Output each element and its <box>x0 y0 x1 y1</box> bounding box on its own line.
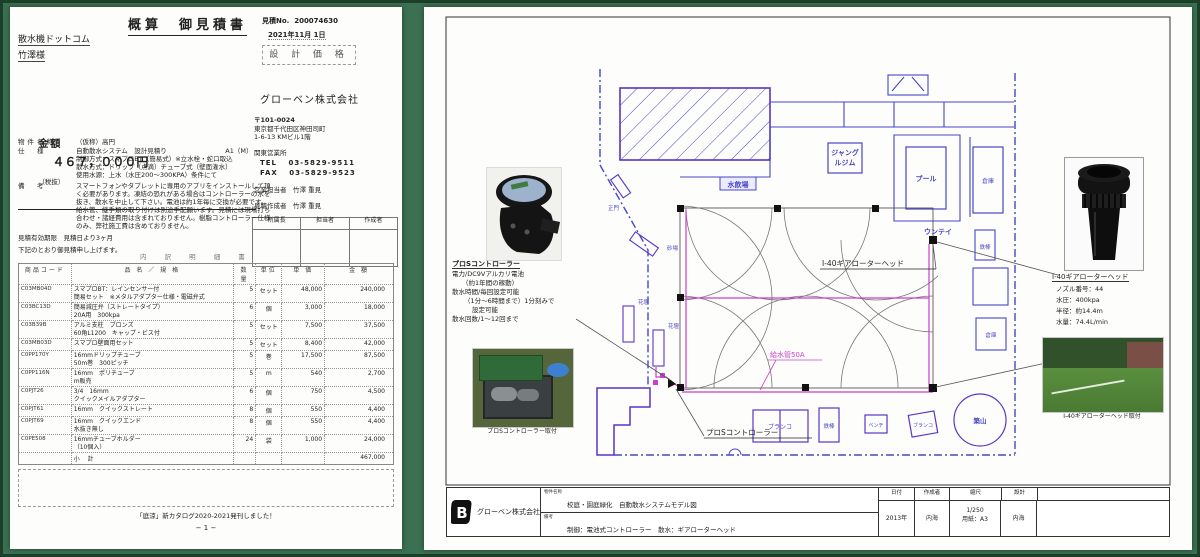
storage-label: 倉庫 <box>982 177 994 185</box>
item-qty: 5 <box>233 321 255 339</box>
design-price-stamp: 設 計 価 格 <box>262 45 356 65</box>
item-row: C0PE508 16mmチューブホルダー（10個入） 24 袋 1,000 24… <box>19 435 394 453</box>
approval-table: 所属長 担当者 作成者 <box>252 217 398 267</box>
controller-note-line: （1分～6時間まで）1分刻みで <box>464 298 554 305</box>
title-block-grid: 日付 作成者 縮尺 設計 2013年 内海 1/250 用紙：A3 内海 <box>879 488 1169 536</box>
author-value: 内海 <box>915 501 950 536</box>
item-price: 1,000 <box>282 435 325 453</box>
remarks-label: 備 考 <box>18 183 47 190</box>
vendor-fax: FAX 03-5829-9523 <box>260 169 356 177</box>
controller-plan-label: プロSコントローラー <box>706 428 778 437</box>
entrance-structure <box>597 388 650 455</box>
items-table: 商品コード 品 名 ／ 規 格 数 量 単位 単 価 金 額 C03MB04D … <box>18 263 394 465</box>
bench-label: ベンチ <box>868 423 883 429</box>
item-name-line2: 60角L1200 キャップ・ビス付 <box>74 330 231 338</box>
rotor-head-art <box>1065 158 1143 270</box>
approval-header: 作成者 <box>350 218 397 230</box>
scale-value: 1/250 用紙：A3 <box>950 501 1001 536</box>
item-name-line1: 16mm ポリチューブ <box>74 370 231 378</box>
controller-note-line: 設定可能 <box>472 307 498 314</box>
project-name-label: 物件名称 <box>544 489 562 495</box>
building-corner <box>1127 342 1163 368</box>
flower-label-2: 花壇 <box>668 322 680 330</box>
item-name-line2: クイックメイルアダプター <box>74 396 231 404</box>
controller-note-title: プロSコントローラー <box>452 260 520 269</box>
project-name-row: 物件名称 校庭・園庭緑化 自動散水システムモデル図 <box>541 488 878 513</box>
vendor-office: 関東営業所 <box>254 150 287 157</box>
item-row: C0PJT69 16mm クイックエンド水抜き無し 8 個 550 4,400 <box>19 417 394 435</box>
notes-box <box>18 469 394 507</box>
item-amount: 4,400 <box>325 417 394 435</box>
item-code: C0PJT69 <box>19 417 72 435</box>
property-name: （仮称）高円 <box>76 139 115 146</box>
item-code: C0PP116N <box>19 369 72 387</box>
col-header-amount: 金 額 <box>325 264 394 285</box>
item-code: C0PJT61 <box>19 405 72 417</box>
item-name: 16mm ポリチューブm販売 <box>71 369 233 387</box>
logo-letter: B <box>456 504 467 522</box>
item-price: 540 <box>282 369 325 387</box>
item-name: 簡易減圧弁（ストレートタイプ）20A用 300kpa <box>71 303 233 321</box>
estimate-title: 概算 御見積書 <box>128 19 247 36</box>
pipe-leader <box>760 360 776 390</box>
title-remarks-label: 備考 <box>544 514 553 520</box>
bars-label: 鉄棒 <box>823 422 835 430</box>
item-amount: 87,500 <box>325 351 394 369</box>
item-price: 750 <box>282 387 325 405</box>
title-block-company: グローベン株式会社 <box>477 507 540 517</box>
item-name: 16mmドリップチューブ50m巻 300ピッチ <box>71 351 233 369</box>
valve-pipe <box>517 389 539 401</box>
item-unit: 個 <box>256 303 282 321</box>
item-amount: 2,700 <box>325 369 394 387</box>
item-unit: 袋 <box>256 435 282 453</box>
head-install-caption: I-40ギアローターヘッド取付 <box>1042 414 1162 421</box>
controller-install-caption: プロSコントローラー取付 <box>472 429 572 436</box>
item-name-line1: スマプロ壁面用セット <box>74 340 231 348</box>
scale-ratio: 1/250 <box>950 507 1000 514</box>
head-spec-line: 半径：約14.4m <box>1056 308 1103 315</box>
controller-photo <box>486 167 562 261</box>
blue-cloth <box>547 363 569 377</box>
detail-header: 内 訳 明 細 書 <box>140 254 253 261</box>
item-qty: 8 <box>233 417 255 435</box>
item-row: C03B39B アルミ支柱 ブロンズ60角L1200 キャップ・ビス付 5 セッ… <box>19 321 394 339</box>
item-qty: 5 <box>233 339 255 351</box>
jungle-gym <box>828 143 862 173</box>
subtotal-label: 小 計 <box>71 453 233 465</box>
spec-line: 使用水源：上水（水圧200～300KPA）条件にて <box>76 172 217 179</box>
item-row: C0PP170Y 16mmドリップチューブ50m巻 300ピッチ 5 巻 17,… <box>19 351 394 369</box>
subtotal-row: 小 計 467,000 <box>19 453 394 465</box>
item-qty: 6 <box>233 387 255 405</box>
subtotal-empty <box>233 453 255 465</box>
item-unit: 個 <box>256 387 282 405</box>
date-value: 2013年 <box>879 501 915 536</box>
col-header-unit: 単位 <box>256 264 282 285</box>
property-name-label: 物件名称 <box>18 139 56 146</box>
pipe-size-label: 給水管50A <box>770 350 805 359</box>
col-header-qty: 数 量 <box>233 264 255 285</box>
item-name-line1: スマプロBT：レインセンサー付 <box>74 286 231 294</box>
item-code: C03BC13D <box>19 303 72 321</box>
item-row: C0PJT61 16mm クイックストレート 8 個 550 4,400 <box>19 405 394 417</box>
vendor-tel: TEL 03-5829-9511 <box>260 159 355 167</box>
quote-date: 2021年11月 1日 <box>268 31 326 40</box>
item-amount: 4,400 <box>325 405 394 417</box>
item-unit: 巻 <box>256 351 282 369</box>
item-name: 3/4 16mmクイックメイルアダプター <box>71 387 233 405</box>
item-name-line2: 20A用 300kpa <box>74 312 231 320</box>
item-name-line1: 16mm クイックストレート <box>74 406 231 414</box>
item-name: アルミ支柱 ブロンズ60角L1200 キャップ・ビス付 <box>71 321 233 339</box>
globen-logo: B <box>451 499 473 525</box>
item-row: C03BC13D 簡易減圧弁（ストレートタイプ）20A用 300kpa 6 個 … <box>19 303 394 321</box>
untei-label: ウンテイ <box>924 227 952 236</box>
controller-note-line: 散水時間/毎回設定可能 <box>452 289 519 296</box>
jungle-gym-label-1: ジャング <box>831 148 859 157</box>
subtotal-empty <box>282 453 325 465</box>
approval-col: 所属長 <box>253 218 301 266</box>
scale-col-header: 縮尺 <box>950 488 1002 500</box>
item-code: C0PJT26 <box>19 387 72 405</box>
approval-col: 担当者 <box>301 218 349 266</box>
item-qty: 5 <box>233 351 255 369</box>
item-row: C0PP116N 16mm ポリチューブm販売 5 m 540 2,700 <box>19 369 394 387</box>
head-spec-line: 水量：74.4L/min <box>1056 319 1108 326</box>
item-name: スマプロ壁面用セット <box>71 339 233 351</box>
item-price: 550 <box>282 417 325 435</box>
items-body: C03MB04D スマプロBT：レインセンサー付簡易セット ※メタルアダプター仕… <box>19 285 394 465</box>
items-header-row: 商品コード 品 名 ／ 規 格 数 量 単位 単 価 金 額 <box>19 264 394 285</box>
vendor-address-2: 1-6-13 KMビル1階 <box>254 134 311 141</box>
item-row: C0PJT26 3/4 16mmクイックメイルアダプター 6 個 750 4,5… <box>19 387 394 405</box>
intro-line: 下記のとおり御見積申し上げます。 <box>18 247 121 254</box>
col-header-name: 品 名 ／ 規 格 <box>71 264 233 285</box>
paper-size: 用紙：A3 <box>950 514 1000 523</box>
estimate-page: 概算 御見積書 見積No. 200074630 2021年11月 1日 設 計 … <box>10 7 402 549</box>
item-unit: セット <box>256 321 282 339</box>
gate-label: 正門 <box>608 205 620 212</box>
item-qty: 6 <box>233 303 255 321</box>
item-code: C0PP170Y <box>19 351 72 369</box>
item-name-line1: 16mm クイックエンド <box>74 418 231 426</box>
spec-label: 仕 様 <box>18 148 47 155</box>
swing2-label: ブランコ <box>913 422 933 429</box>
addressee-company: 散水機ドットコム <box>18 35 90 46</box>
item-name-line2: 簡易セット ※メタルアダプター仕様・電磁弁式 <box>74 294 231 302</box>
addressee-person: 竹澤様 <box>18 51 45 62</box>
controller-photo-art <box>487 168 561 260</box>
footer-page-number: − 1 − <box>10 524 402 532</box>
item-name: 16mm クイックストレート <box>71 405 233 417</box>
controller-note-line: 散水回数/1～12回まで <box>452 316 519 323</box>
head-spec-line: ノズル番号：44 <box>1056 286 1103 293</box>
author-col-header: 作成者 <box>915 488 950 500</box>
col-header-price: 単 価 <box>282 264 325 285</box>
item-name-line2: m販売 <box>74 378 231 386</box>
design-value: 内海 <box>1001 501 1037 536</box>
subtotal-empty <box>19 453 72 465</box>
quote-number: 見積No. 200074630 <box>262 17 338 25</box>
project-name-value: 校庭・園庭緑化 自動散水システムモデル図 <box>567 499 697 509</box>
design-col-header: 設計 <box>1002 488 1038 500</box>
item-amount: 4,500 <box>325 387 394 405</box>
item-qty: 8 <box>233 405 255 417</box>
flower-beds <box>611 175 664 366</box>
item-code: C03MB04D <box>19 285 72 303</box>
item-row: C03MB03D スマプロ壁面用セット 5 セット 8,400 42,000 <box>19 339 394 351</box>
jungle-gym-label-2: ルジム <box>835 159 856 167</box>
gate-arc <box>729 449 741 455</box>
item-unit: m <box>256 369 282 387</box>
item-unit: 個 <box>256 405 282 417</box>
head-install-photo <box>1042 337 1164 413</box>
approval-header: 担当者 <box>301 218 348 230</box>
head-spec-line: 水圧：400kpa <box>1056 297 1100 304</box>
storage2-label: 倉庫 <box>985 331 997 339</box>
box-lid <box>479 355 543 381</box>
title-grid-values: 2013年 内海 1/250 用紙：A3 内海 <box>879 501 1169 536</box>
item-amount: 18,000 <box>325 303 394 321</box>
item-unit: 個 <box>256 417 282 435</box>
mound-label: 築山 <box>973 416 987 425</box>
item-price: 48,000 <box>282 285 325 303</box>
item-name-line2: 50m巻 300ピッチ <box>74 360 231 368</box>
pool-label: プール <box>916 174 937 183</box>
subtotal-empty <box>256 453 282 465</box>
item-unit: セット <box>256 285 282 303</box>
bars-right-label: 鉄棒 <box>979 243 991 251</box>
item-price: 3,000 <box>282 303 325 321</box>
item-price: 17,500 <box>282 351 325 369</box>
item-price: 550 <box>282 405 325 417</box>
extra-col-header <box>1038 488 1169 500</box>
item-unit: セット <box>256 339 282 351</box>
pipe-fitting <box>653 380 658 385</box>
item-code: C03MB03D <box>19 339 72 351</box>
item-price: 8,400 <box>282 339 325 351</box>
remarks-line: のみ、弊社施工費は含めておりません。 <box>76 223 193 230</box>
valve-pipe <box>491 387 517 401</box>
item-row: C03MB04D スマプロBT：レインセンサー付簡易セット ※メタルアダプター仕… <box>19 285 394 303</box>
title-block-company-cell: B グローベン株式会社 <box>447 488 541 536</box>
item-name-line1: 3/4 16mm <box>74 388 231 396</box>
item-qty: 5 <box>233 285 255 303</box>
vendor-name: グローベン株式会社 <box>260 95 359 107</box>
extra-value <box>1037 501 1169 536</box>
item-price: 7,500 <box>282 321 325 339</box>
item-name-line1: アルミ支柱 ブロンズ <box>74 322 231 330</box>
item-name: 16mm クイックエンド水抜き無し <box>71 417 233 435</box>
item-name: スマプロBT：レインセンサー付簡易セット ※メタルアダプター仕様・電磁弁式 <box>71 285 233 303</box>
item-amount: 24,000 <box>325 435 394 453</box>
school-building <box>620 88 770 160</box>
item-name-line1: 16mmチューブホルダー <box>74 436 231 444</box>
rotor-head-photo <box>1064 157 1144 271</box>
item-name: 16mmチューブホルダー（10個入） <box>71 435 233 453</box>
item-code: C03B39B <box>19 321 72 339</box>
flower-label-1: 花壇 <box>638 298 650 306</box>
item-amount: 240,000 <box>325 285 394 303</box>
head-plan-label: I-40ギアローターヘッド <box>822 259 904 268</box>
col-header-code: 商品コード <box>19 264 72 285</box>
title-grid-header: 日付 作成者 縮尺 設計 <box>879 488 1169 501</box>
vendor-zip: 〒101-0024 <box>254 117 295 124</box>
item-qty: 5 <box>233 369 255 387</box>
item-name-line2: 水抜き無し <box>74 426 231 434</box>
footer-catalog-note: 「庭涼」新カタログ2020-2021発刊しました！ <box>10 513 402 520</box>
subtotal-value: 467,000 <box>325 453 394 465</box>
validity-line: 見積有効期限 見積日より3ヶ月 <box>18 235 113 242</box>
school-box-label: 水飲場 <box>728 180 749 189</box>
remarks-row: 備考 制御：電池式コントローラー 散水：ギアローターヘッド <box>541 513 878 537</box>
item-code: C0PE508 <box>19 435 72 453</box>
controller-install-photo <box>472 348 574 428</box>
item-qty: 24 <box>233 435 255 453</box>
supply-pipes <box>656 210 933 392</box>
head-note-title: I-40ギアローターヘッド <box>1052 273 1129 282</box>
date-col-header: 日付 <box>879 488 915 500</box>
controller-note-line: 電力/DC9Vアルカリ電池 <box>452 271 524 278</box>
title-block-name-cell: 物件名称 校庭・園庭緑化 自動散水システムモデル図 備考 制御：電池式コントロー… <box>541 488 879 536</box>
approval-col: 作成者 <box>350 218 397 266</box>
drawing-page: プール 倉庫 ジャング ルジム 水飲場 鉄棒 倉庫 花壇 花壇 砂場 正門 <box>424 7 1192 550</box>
sand-label: 砂場 <box>667 244 679 252</box>
item-name-line2: （10個入） <box>74 444 231 452</box>
title-block: B グローベン株式会社 物件名称 校庭・園庭緑化 自動散水システムモデル図 備考… <box>446 487 1170 537</box>
item-name-line1: 16mmドリップチューブ <box>74 352 231 360</box>
item-name-line1: 簡易減圧弁（ストレートタイプ） <box>74 304 231 312</box>
item-amount: 37,500 <box>325 321 394 339</box>
item-amount: 42,000 <box>325 339 394 351</box>
controller-note-line: （約1年間の稼動） <box>462 280 518 287</box>
title-remarks-value: 制御：電池式コントローラー 散水：ギアローターヘッド <box>567 524 736 534</box>
